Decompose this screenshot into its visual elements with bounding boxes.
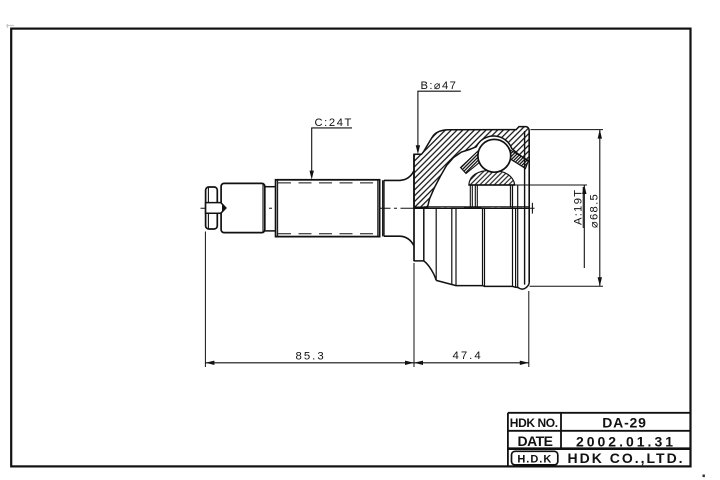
svg-text:A:19T: A:19T (573, 189, 585, 225)
svg-text:B:⌀47: B:⌀47 (421, 80, 458, 92)
svg-text:2002.01.31: 2002.01.31 (576, 434, 676, 450)
svg-text:HDK NO.: HDK NO. (510, 416, 558, 430)
svg-text:DA-29: DA-29 (602, 415, 646, 431)
svg-text:DATE: DATE (517, 433, 552, 449)
svg-text:85.3: 85.3 (296, 350, 326, 362)
svg-text:47.4: 47.4 (453, 350, 483, 362)
svg-text:H.D.K: H.D.K (517, 453, 552, 465)
svg-text:⌀68.5: ⌀68.5 (589, 193, 601, 228)
svg-text:C:24T: C:24T (315, 117, 353, 129)
svg-text:HDK CO.,LTD.: HDK CO.,LTD. (568, 450, 685, 466)
